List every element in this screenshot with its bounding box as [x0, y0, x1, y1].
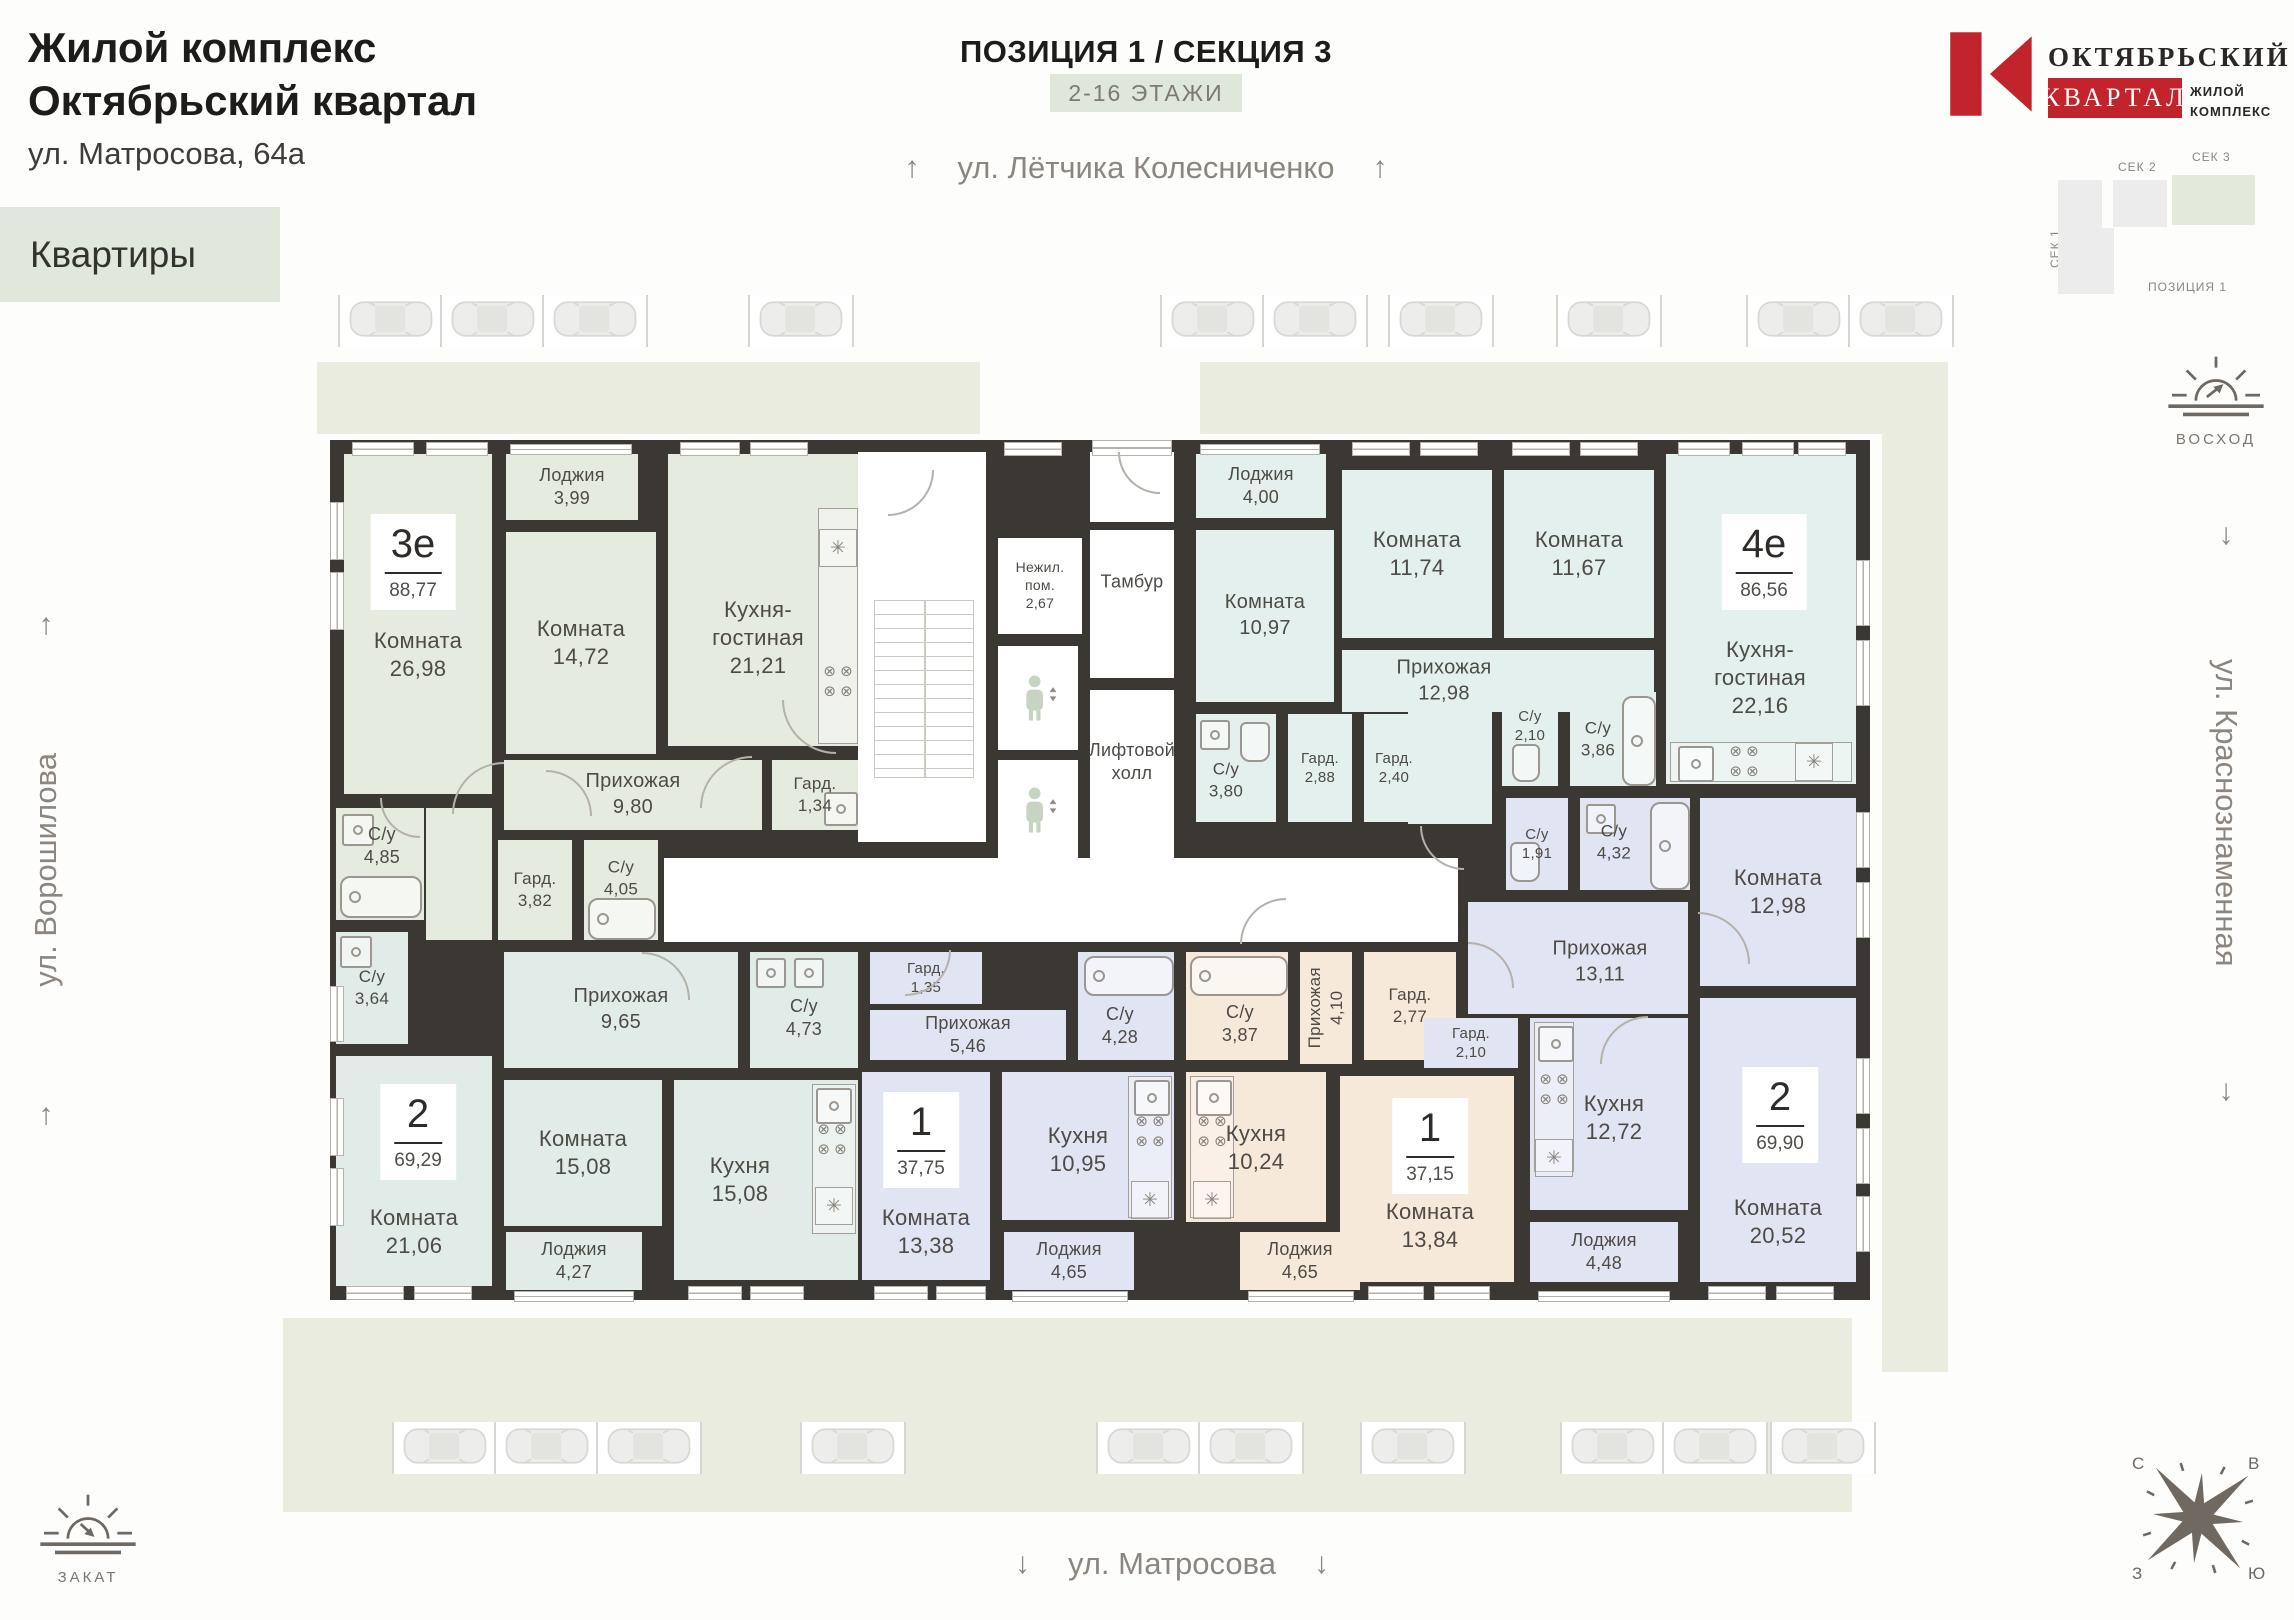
- car-icon: [449, 298, 537, 345]
- floors-badge: 2-16 ЭТАЖИ: [1050, 74, 1242, 112]
- window: [688, 1286, 742, 1300]
- room-label: С/у4,32: [1597, 820, 1631, 864]
- stove-icon: ⊗ ⊗ ⊗ ⊗: [1197, 1112, 1226, 1153]
- room-4e-gard-2-40: Гард.2,40: [1364, 714, 1424, 822]
- room-label: Прихожая9,80: [585, 769, 680, 820]
- window: [936, 1286, 986, 1300]
- window: [514, 1291, 634, 1302]
- apartment-area: 88,77: [385, 574, 442, 602]
- room-label: Комната14,72: [537, 615, 625, 671]
- parking-stall: [1198, 1422, 1304, 1474]
- car-icon: [1779, 1425, 1867, 1472]
- bath-icon: [1650, 802, 1690, 890]
- window: [1434, 1286, 1490, 1300]
- room-label: Кухня10,95: [1048, 1122, 1108, 1178]
- window: [1776, 1286, 1834, 1300]
- logo-name: ОКТЯБРЬСКИЙ: [2048, 42, 2291, 73]
- room-label: Комната26,98: [374, 627, 462, 683]
- room-label: Кухня-гостиная21,21: [712, 596, 804, 680]
- room-label: Тамбур: [1101, 570, 1164, 593]
- stairs-icon: [874, 600, 974, 778]
- car-icon: [503, 1425, 591, 1472]
- apartment-badge-2-69-29[interactable]: 269,29: [380, 1084, 456, 1180]
- apartment-badge-1-37-75[interactable]: 137,75: [883, 1092, 959, 1188]
- window: [1856, 882, 1870, 938]
- room-4e-gard-2-88: Гард.2,88: [1288, 714, 1352, 822]
- room-label: Лоджия4,48: [1571, 1229, 1637, 1275]
- window: [330, 572, 344, 630]
- car-icon: [1169, 298, 1257, 345]
- room-apt1a-prihozhaya-5-46: Прихожая5,46: [870, 1010, 1066, 1060]
- room-label: С/у2,10: [1515, 707, 1545, 745]
- site-map-sek3-label: СЕК 3: [2192, 150, 2231, 164]
- car-icon: [1397, 298, 1485, 345]
- window: [1512, 442, 1570, 456]
- car-icon: [551, 298, 639, 345]
- site-map-sek3-block[interactable]: [2172, 175, 2255, 225]
- room-4e-lodzhiya-4-00: Лоджия4,00: [1196, 454, 1326, 518]
- room-3e-lodzhiya-3-99: Лоджия3,99: [506, 454, 638, 520]
- wc-icon: [1512, 744, 1540, 782]
- parking-stall: [338, 295, 442, 347]
- sink-icon: [1538, 1026, 1574, 1062]
- room-nonresidential-2-67: Нежил.пом.2,67: [998, 538, 1082, 634]
- room-label: Кухня-гостиная22,16: [1714, 636, 1806, 720]
- room-label: Лоджия4,27: [541, 1238, 607, 1284]
- parking-stall: [1096, 1422, 1200, 1474]
- room-label: Комната20,52: [1734, 1194, 1822, 1250]
- arrow-up-icon: ↑: [39, 1098, 54, 1132]
- site-map: СЕК 1 СЕК 2 СЕК 3 ПОЗИЦИЯ 1: [2040, 128, 2270, 303]
- car-icon: [605, 1425, 693, 1472]
- room-label: С/у3,87: [1222, 1001, 1258, 1047]
- room-apt1b-prihozhaya-4-10: Прихожая4,10: [1300, 952, 1352, 1064]
- apartment-rooms-count: 1: [1406, 1106, 1454, 1158]
- window: [874, 1286, 928, 1300]
- room-label: Комната15,08: [539, 1125, 627, 1181]
- car-icon: [1569, 1425, 1657, 1472]
- car-icon: [1755, 298, 1843, 345]
- room-4e-kuhnya-gostinaya-22-16: Кухня-гостиная22,16: [1666, 454, 1856, 784]
- sink-icon: [794, 958, 824, 988]
- apartment-badge-3e[interactable]: 3е88,77: [371, 514, 456, 610]
- car-icon: [757, 298, 845, 345]
- room-label: С/у4,85: [364, 823, 400, 869]
- bath-icon: [1084, 956, 1174, 996]
- parking-stall: [440, 295, 544, 347]
- window: [352, 442, 414, 456]
- car-icon: [1105, 1425, 1193, 1472]
- sunrise: ВОСХОД: [2156, 348, 2276, 448]
- apartment-badge-1-37-15[interactable]: 137,15: [1392, 1098, 1468, 1194]
- room-3e-gard-3-82: Гард.3,82: [498, 840, 572, 940]
- parking-stall: [1746, 295, 1850, 347]
- logo-mark-icon: [1944, 26, 2040, 122]
- apartment-rooms-count: 2: [394, 1092, 442, 1144]
- room-label: Лифтовойхолл: [1089, 739, 1175, 785]
- parking-stall: [1662, 1422, 1768, 1474]
- parking-stall: [542, 295, 648, 347]
- room-label: Гард.3,82: [514, 868, 557, 912]
- parking-stall: [1388, 295, 1494, 347]
- room-label: Кухня15,08: [710, 1152, 770, 1208]
- room-3e-hall: [426, 808, 492, 940]
- window: [1798, 442, 1846, 456]
- bath-icon: [340, 876, 422, 918]
- room-label: С/у3,80: [1209, 758, 1243, 802]
- parking-stall: [392, 1422, 496, 1474]
- street-top-label: ул. Лётчика Колесниченко: [957, 150, 1334, 186]
- room-apt2a-komnata-15-08: Комната15,08: [504, 1080, 662, 1226]
- window: [1708, 1286, 1766, 1300]
- window: [1420, 442, 1478, 456]
- street-bottom: ↓ ул. Матросова ↓: [872, 1546, 1472, 1582]
- room-label: Комната13,38: [882, 1204, 970, 1260]
- sink-icon: [816, 1088, 852, 1124]
- arrow-down-icon: ↓: [2219, 518, 2234, 552]
- street-left-label: ул. Ворошилова: [28, 753, 64, 987]
- room-label: Прихожая12,98: [1396, 655, 1491, 706]
- vent-icon: ✳: [819, 529, 857, 567]
- tab-apartments-label: Квартиры: [30, 234, 196, 276]
- room-label: С/у4,05: [604, 856, 638, 900]
- car-icon: [1207, 1425, 1295, 1472]
- parking-stall: [1556, 295, 1662, 347]
- window: [1856, 640, 1870, 706]
- street-bottom-label: ул. Матросова: [1068, 1546, 1276, 1582]
- street-top: ↑ ул. Лётчика Колесниченко ↑: [846, 150, 1446, 186]
- site-map-sek1-block[interactable]: [2058, 228, 2114, 294]
- car-icon: [1271, 298, 1359, 345]
- window: [330, 1168, 344, 1226]
- sunrise-label: ВОСХОД: [2156, 431, 2276, 448]
- sunset-label: ЗАКАТ: [28, 1569, 148, 1586]
- room-label: Гард.2,10: [1452, 1024, 1490, 1062]
- arrow-down-icon: ↓: [2219, 1074, 2234, 1108]
- window: [1580, 442, 1638, 456]
- parking-stall: [748, 295, 854, 347]
- parking-stall: [596, 1422, 702, 1474]
- car-icon: [401, 1425, 489, 1472]
- sink-icon: [1196, 1080, 1232, 1116]
- window: [680, 442, 740, 456]
- arrow-down-icon: ↓: [1015, 1547, 1030, 1581]
- window: [1678, 442, 1730, 456]
- apartment-rooms-count: 1: [897, 1100, 945, 1152]
- room-label: Комната21,06: [370, 1204, 458, 1260]
- site-map-position-label: ПОЗИЦИЯ 1: [2148, 280, 2227, 294]
- room-label: Комната11,74: [1373, 526, 1461, 582]
- stove-icon: ⊗ ⊗ ⊗ ⊗: [1729, 742, 1758, 783]
- parking-stall: [1848, 295, 1954, 347]
- bath-icon: [1622, 696, 1656, 786]
- site-map-sek2-block[interactable]: [2113, 180, 2167, 227]
- page: Комната26,98Лоджия3,99Комната14,72Кухня-…: [0, 0, 2294, 1620]
- street-right: ↓ ул. Краснознаменная ↓: [2194, 518, 2258, 1108]
- parking-stall: [1160, 295, 1264, 347]
- window: [1856, 1058, 1870, 1114]
- stove-icon: ⊗ ⊗ ⊗ ⊗: [817, 1120, 846, 1161]
- room-apt2a-lodzhiya-4-27: Лоджия4,27: [506, 1232, 642, 1290]
- compass-south-label: Ю: [2248, 1564, 2265, 1584]
- window: [1856, 812, 1870, 868]
- room-corridor: [664, 858, 1458, 942]
- room-4e-komnata-10-97: Комната10,97: [1196, 530, 1334, 702]
- bath-icon: [1190, 956, 1288, 996]
- window: [1742, 442, 1794, 456]
- window: [330, 986, 344, 1042]
- room-label: Гард.1,34: [794, 773, 837, 817]
- arrow-up-icon: ↑: [39, 608, 54, 642]
- apartment-area: 37,15: [1406, 1158, 1454, 1186]
- room-label: Комната10,97: [1225, 590, 1305, 641]
- arrow-up-icon: ↑: [904, 151, 919, 185]
- sink-icon: [756, 958, 786, 988]
- compass-east-label: В: [2248, 1454, 2259, 1474]
- vent-icon: ✳: [815, 1187, 853, 1225]
- car-icon: [1857, 298, 1945, 345]
- car-icon: [1369, 1425, 1457, 1472]
- apartment-rooms-count: 3е: [385, 522, 442, 574]
- apartment-badge-4e[interactable]: 4е86,56: [1722, 514, 1807, 610]
- room-4e-komnata-11-74: Комната11,74: [1342, 470, 1492, 638]
- car-icon: [347, 298, 435, 345]
- window: [1004, 442, 1062, 456]
- apartment-rooms-count: 2: [1756, 1075, 1804, 1127]
- window: [330, 502, 344, 560]
- window: [1856, 560, 1870, 626]
- room-label: Нежил.пом.2,67: [1016, 559, 1065, 613]
- room-label: Кухня10,24: [1226, 1120, 1286, 1176]
- parking-stall: [1560, 1422, 1664, 1474]
- sunset-icon: [33, 1486, 143, 1562]
- page-title: Жилой комплекс Октябрьский квартал: [28, 22, 477, 127]
- stove-icon: ⊗ ⊗ ⊗ ⊗: [1135, 1112, 1164, 1153]
- car-icon: [1565, 298, 1653, 345]
- room-apt1a-lodzhiya-4-65: Лоджия4,65: [1004, 1232, 1134, 1290]
- parking-stall: [1360, 1422, 1466, 1474]
- room-label: Лоджия4,65: [1267, 1238, 1333, 1284]
- room-label: С/у4,73: [786, 995, 822, 1041]
- sink-icon: [1200, 720, 1230, 750]
- window: [1248, 1291, 1354, 1302]
- sunset: ЗАКАТ: [28, 1486, 148, 1586]
- sink-icon: [1678, 746, 1714, 782]
- room-label: Лоджия4,00: [1228, 463, 1294, 509]
- room-label: Кухня12,72: [1584, 1090, 1644, 1146]
- window: [510, 444, 632, 455]
- bath-icon: [588, 898, 656, 940]
- room-label: Прихожая13,11: [1552, 936, 1647, 987]
- elevator-icon: [998, 760, 1078, 860]
- position-title: ПОЗИЦИЯ 1 / СЕКЦИЯ 3: [846, 34, 1446, 70]
- logo-tagline: ЖИЛОЙ КОМПЛЕКС: [2190, 82, 2271, 121]
- vent-icon: ✳: [1535, 1139, 1573, 1177]
- window: [1856, 1196, 1870, 1252]
- compass-north-label: С: [2132, 1454, 2144, 1474]
- car-icon: [1671, 1425, 1759, 1472]
- window: [414, 1286, 472, 1300]
- vent-icon: ✳: [1795, 743, 1833, 781]
- room-label: Лоджия4,65: [1036, 1238, 1102, 1284]
- tab-apartments[interactable]: Квартиры: [0, 207, 280, 302]
- window: [750, 1286, 804, 1300]
- room-label: Гард.2,88: [1301, 749, 1339, 787]
- sunrise-icon: [2161, 348, 2271, 424]
- room-label: Гард.2,77: [1389, 984, 1432, 1028]
- logo-name-bottom: КВАРТАЛ: [2048, 78, 2182, 118]
- street-left: ↑ ул. Ворошилова ↑: [14, 608, 78, 1132]
- apartment-area: 37,75: [897, 1152, 945, 1180]
- sink-icon: [340, 936, 372, 968]
- compass-rose: С В З Ю: [2126, 1446, 2270, 1590]
- room-label: Комната11,67: [1535, 526, 1623, 582]
- room-tambur: Тамбур: [1090, 530, 1174, 678]
- window: [1012, 1291, 1128, 1302]
- window: [1352, 442, 1410, 456]
- parking-stall: [494, 1422, 598, 1474]
- parking-stall: [800, 1422, 906, 1474]
- room-apt2b-lodzhiya-4-48: Лоджия4,48: [1530, 1222, 1678, 1282]
- room-label: Комната12,98: [1734, 864, 1822, 920]
- room-3e-komnata-14-72: Комната14,72: [506, 532, 656, 754]
- parking-stall: [1262, 295, 1368, 347]
- sink-icon: [1134, 1080, 1170, 1116]
- logo[interactable]: ОКТЯБРЬСКИЙ КВАРТАЛ ЖИЛОЙ КОМПЛЕКС: [1944, 26, 2274, 126]
- apartment-area: 86,56: [1736, 574, 1793, 602]
- window: [750, 442, 808, 456]
- car-icon: [809, 1425, 897, 1472]
- arrow-up-icon: ↑: [1373, 151, 1388, 185]
- window: [1856, 1128, 1870, 1184]
- room-label: С/у3,64: [355, 966, 389, 1010]
- apartment-area: 69,29: [394, 1144, 442, 1172]
- vent-icon: ✳: [1131, 1181, 1169, 1219]
- wc-icon: [1240, 722, 1270, 762]
- room-apt2a-prihozhaya-9-65: Прихожая9,65: [504, 952, 738, 1068]
- room-label: Прихожая5,46: [925, 1012, 1011, 1058]
- compass-west-label: З: [2132, 1564, 2142, 1584]
- window: [1538, 1291, 1670, 1302]
- apartment-rooms-count: 4е: [1736, 522, 1793, 574]
- room-label: Гард.2,40: [1375, 749, 1413, 787]
- room-label: С/у1,91: [1522, 825, 1552, 863]
- window: [426, 442, 488, 456]
- room-label: С/у4,28: [1102, 1003, 1138, 1049]
- street-right-label: ул. Краснознаменная: [2208, 659, 2244, 967]
- room-label: Прихожая4,10: [1304, 967, 1348, 1048]
- elevator-icon: [998, 646, 1078, 750]
- window: [346, 1286, 404, 1300]
- room-label: Лоджия3,99: [539, 464, 605, 510]
- floor-plan: Комната26,98Лоджия3,99Комната14,72Кухня-…: [0, 0, 2294, 1620]
- room-apt2b-gard-2-10: Гард.2,10: [1424, 1018, 1518, 1068]
- parking-stall: [1770, 1422, 1876, 1474]
- window: [330, 1098, 344, 1156]
- room-label: Комната13,84: [1386, 1198, 1474, 1254]
- window: [1200, 444, 1320, 455]
- vent-icon: ✳: [1193, 1181, 1231, 1219]
- room-3e-komnata-26-98: Комната26,98: [344, 454, 492, 794]
- arrow-down-icon: ↓: [1314, 1547, 1329, 1581]
- stove-icon: ⊗ ⊗ ⊗ ⊗: [823, 662, 852, 703]
- address: ул. Матросова, 64а: [28, 136, 305, 172]
- room-4e-komnata-11-67: Комната11,67: [1504, 470, 1654, 638]
- apartment-area: 69,90: [1756, 1127, 1804, 1155]
- room-apt1b-lodzhiya-4-65: Лоджия4,65: [1240, 1232, 1360, 1290]
- apartment-badge-2-69-90[interactable]: 269,90: [1742, 1067, 1818, 1163]
- room-label: С/у3,86: [1581, 717, 1615, 761]
- site-map-sek2-label: СЕК 2: [2118, 160, 2157, 174]
- window: [1368, 1286, 1424, 1300]
- stove-icon: ⊗ ⊗ ⊗ ⊗: [1539, 1070, 1568, 1111]
